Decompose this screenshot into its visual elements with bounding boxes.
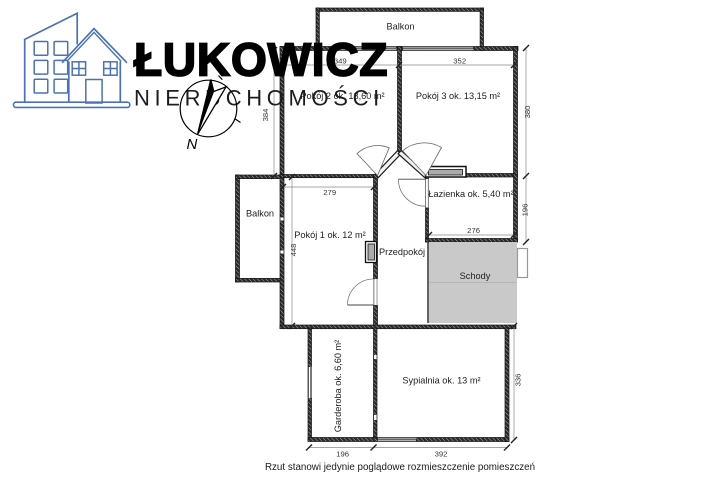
svg-text:276: 276: [467, 226, 480, 235]
svg-text:279: 279: [323, 188, 336, 197]
svg-text:Rzut stanowi jedynie poglądowe: Rzut stanowi jedynie poglądowe rozmieszc…: [265, 462, 535, 473]
svg-text:Balkon: Balkon: [386, 22, 414, 32]
svg-text:N: N: [187, 136, 198, 153]
svg-text:196: 196: [336, 450, 349, 459]
svg-text:Łazienka ok. 5,40 m²: Łazienka ok. 5,40 m²: [428, 189, 513, 199]
svg-text:Schody: Schody: [460, 271, 491, 281]
svg-text:Sypialnia ok. 13 m²: Sypialnia ok. 13 m²: [402, 376, 480, 386]
svg-text:ŁUKOWICZ: ŁUKOWICZ: [134, 34, 388, 86]
svg-text:Garderoba ok. 6,60 m²: Garderoba ok. 6,60 m²: [333, 340, 343, 432]
svg-text:Pokój 3 ok. 13,15 m²: Pokój 3 ok. 13,15 m²: [416, 91, 500, 101]
svg-text:336: 336: [513, 374, 522, 387]
svg-text:448: 448: [289, 244, 298, 257]
svg-text:392: 392: [435, 450, 448, 459]
svg-text:NIERUCHOMOŚCI: NIERUCHOMOŚCI: [134, 86, 384, 111]
svg-text:196: 196: [521, 204, 530, 217]
svg-text:Balkon: Balkon: [246, 209, 274, 219]
svg-text:Przedpokój: Przedpokój: [379, 247, 425, 257]
svg-text:380: 380: [523, 106, 532, 119]
svg-text:352: 352: [453, 57, 466, 66]
svg-text:Pokój 1 ok. 12 m²: Pokój 1 ok. 12 m²: [294, 230, 366, 240]
